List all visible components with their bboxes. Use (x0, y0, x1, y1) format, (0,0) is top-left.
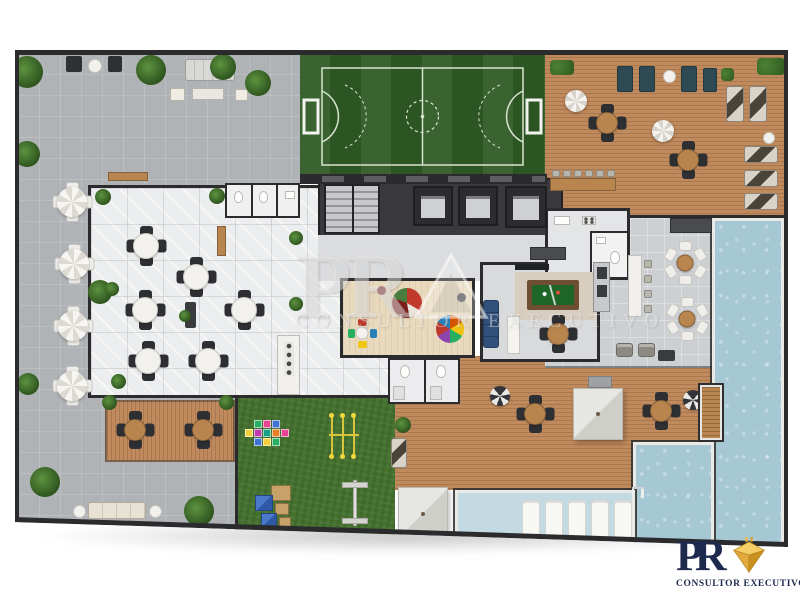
umb-table (51, 365, 93, 407)
brand-logo: PR CONSULTOR EXECUTIVO (676, 534, 796, 596)
lounger-h (744, 193, 778, 210)
table-top (677, 149, 699, 171)
chair (692, 246, 707, 262)
table4wood (116, 411, 154, 449)
table-top (547, 323, 569, 345)
stool (585, 170, 593, 177)
table4wood (669, 141, 707, 179)
gray-table (588, 376, 612, 388)
bench-teal (617, 66, 633, 92)
stool (574, 170, 582, 177)
chair (681, 297, 694, 307)
table4 (224, 290, 264, 330)
pool-ladder-icon (632, 487, 644, 498)
table4wood (516, 395, 554, 433)
chair (663, 246, 678, 262)
round-white (149, 505, 162, 518)
chair (692, 263, 707, 279)
lounger-v (749, 86, 767, 122)
armchair (638, 343, 655, 357)
plant (17, 373, 39, 395)
table-top (57, 187, 87, 217)
table4wood (642, 392, 680, 430)
table4 (125, 290, 165, 330)
hedge (550, 60, 574, 75)
wall-left (15, 50, 19, 520)
plant (289, 231, 303, 245)
chair (694, 319, 709, 335)
round-white (763, 132, 775, 144)
table-top (679, 311, 696, 328)
bench-dark (66, 56, 82, 72)
table6 (664, 296, 710, 342)
table4 (188, 341, 228, 381)
wall-right (784, 50, 788, 547)
stool (563, 170, 571, 177)
plant (209, 188, 225, 204)
folded-umb (490, 386, 510, 406)
counter-dark (670, 218, 712, 233)
round-white (663, 70, 676, 83)
table4 (128, 341, 168, 381)
chair (663, 263, 678, 279)
plant (111, 374, 126, 389)
table-top (135, 348, 161, 374)
table4wood (539, 315, 577, 353)
plant (30, 467, 60, 497)
counter-dark (530, 247, 566, 260)
bar-wood (217, 226, 226, 256)
sofa-cream (88, 502, 146, 519)
stool (607, 170, 615, 177)
stool (644, 260, 652, 268)
coffee-table (192, 88, 224, 100)
console-wood (108, 172, 148, 181)
table4 (126, 226, 166, 266)
counter-wood (550, 178, 616, 191)
brand-initials: PR (676, 534, 719, 578)
stool (644, 305, 652, 313)
table-top (124, 419, 146, 441)
table-top (183, 264, 209, 290)
stool (596, 170, 604, 177)
table-dark (658, 350, 675, 361)
table-top (195, 348, 221, 374)
table-top (231, 297, 257, 323)
floorplan-render: PR CONSULTOR EXECUTIVO PR CONSULTOR EXEC… (0, 0, 800, 600)
table-top (58, 311, 88, 341)
lounger-v (391, 438, 407, 468)
counter-white (628, 255, 642, 317)
table-top (596, 112, 618, 134)
umb-table (53, 243, 95, 285)
plant (136, 55, 166, 85)
umb (565, 90, 587, 112)
stool (644, 275, 652, 283)
lounger-h (744, 170, 778, 187)
table-top (650, 400, 672, 422)
armchair (616, 343, 633, 357)
plant (210, 54, 236, 80)
umb (652, 120, 674, 142)
chair (694, 302, 709, 318)
lounger-h (744, 146, 778, 163)
round-white (88, 59, 102, 73)
table-top (57, 371, 87, 401)
furniture-layer (15, 50, 788, 547)
bench-teal (703, 68, 717, 92)
chair (665, 302, 680, 318)
stool (552, 170, 560, 177)
wall-top (15, 50, 788, 55)
pool-daybed (700, 385, 722, 440)
plant (184, 496, 214, 526)
bench-teal (681, 66, 697, 92)
round-white (73, 505, 86, 518)
plant (179, 310, 191, 322)
table-top (677, 255, 694, 272)
table-top (132, 297, 158, 323)
table4wood (588, 104, 626, 142)
table-top (133, 233, 159, 259)
square-canopy (573, 388, 623, 440)
ottoman (170, 88, 185, 101)
chair (665, 319, 680, 335)
table-top (59, 249, 89, 279)
brand-diamond-icon (725, 537, 773, 575)
ottoman (235, 89, 248, 101)
plant (105, 282, 119, 296)
table4wood (184, 411, 222, 449)
lounger-v (726, 86, 744, 122)
table6 (662, 240, 708, 286)
plant (245, 70, 271, 96)
bench-dark (108, 56, 122, 72)
stool (644, 290, 652, 298)
chair (679, 275, 692, 285)
chair (681, 331, 694, 341)
plant (95, 189, 111, 205)
table-top (524, 403, 546, 425)
hedge (757, 58, 785, 75)
bench-teal (639, 66, 655, 92)
table-top (192, 419, 214, 441)
table4 (176, 257, 216, 297)
umb-table (51, 181, 93, 223)
plant (102, 395, 117, 410)
plant (219, 395, 234, 410)
umb-table (52, 305, 94, 347)
brand-tagline: CONSULTOR EXECUTIVO (676, 579, 796, 589)
site-plan: PR CONSULTOR EXECUTIVO (15, 50, 788, 547)
hedge (721, 68, 734, 81)
chair (679, 241, 692, 251)
plant (395, 417, 411, 433)
plant (289, 297, 303, 311)
